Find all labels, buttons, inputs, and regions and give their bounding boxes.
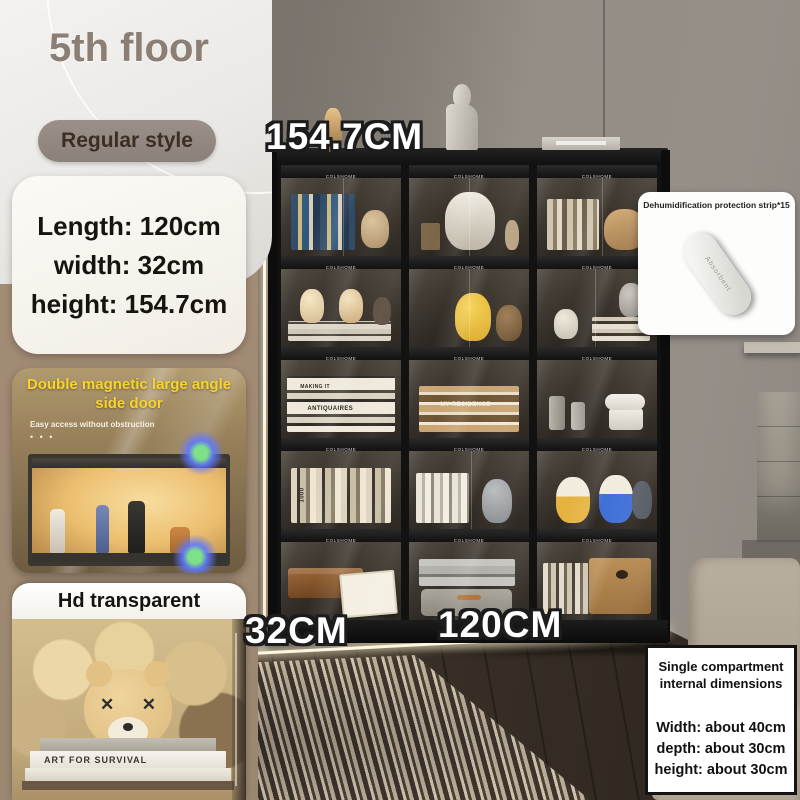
internal-dimensions-title-line2: internal dimensions [648, 675, 794, 692]
internal-dimensions-title-line1: Single compartment [648, 658, 794, 675]
stacked-books [419, 386, 520, 432]
brand-label: COLSHOME [326, 356, 357, 361]
internal-depth-spec: depth: about 30cm [648, 739, 794, 760]
cat-figurine [300, 289, 324, 323]
cabinet-cell: COLSHOME [405, 438, 533, 529]
shelf-brand-bar: COLSHOME [281, 347, 401, 360]
brand-label: COLSHOME [582, 447, 613, 452]
shelf-brand-bar: COLSHOME [281, 256, 401, 269]
shelf-brand-bar: COLSHOME [409, 165, 529, 178]
magnetic-spark-effect [178, 430, 224, 476]
depth-dimension-label: 32CM [245, 610, 348, 652]
cabinet-cell: COLSHOME [277, 529, 405, 620]
cabinet-cell: COLSHOME [277, 165, 405, 256]
dehumidifier-strip-photo: Absorbent [645, 218, 788, 328]
floor-title: 5th floor [0, 26, 258, 71]
cell-contents [537, 451, 657, 529]
cell-contents [409, 178, 529, 256]
feature-card-dots: • • • [30, 432, 54, 442]
cabinet-cell: COLSHOME MAKING IT ANTIQUAIRES [277, 347, 405, 438]
white-books [416, 473, 469, 523]
shelf-brand-bar: COLSHOME [537, 438, 657, 451]
wooden-crate [589, 558, 651, 614]
shelf-brand-bar: COLSHOME [281, 438, 401, 451]
brand-label: COLSHOME [582, 174, 613, 179]
blue-helmet-figure [599, 475, 633, 523]
certificate-frame [339, 570, 398, 618]
cell-contents [537, 360, 657, 438]
style-badge-label: Regular style [61, 129, 193, 153]
pikachu-plush [455, 293, 491, 341]
brand-label: COLSHOME [454, 174, 485, 179]
brand-label: COLSHOME [582, 265, 613, 270]
height-dimension-label: 154.7CM [266, 116, 423, 158]
cell-contents [409, 269, 529, 347]
hd-card-title: Hd transparent [58, 590, 200, 613]
height-spec: height: 154.7cm [31, 289, 228, 320]
gray-box-stack [419, 559, 515, 586]
cell-contents: MY RESIDENCE [409, 360, 529, 438]
book-stack: ART FOR SURVIVAL [22, 738, 234, 790]
cat-figurine [339, 289, 363, 323]
sideboard [757, 392, 800, 542]
length-spec: Length: 120cm [37, 211, 221, 242]
shelf-brand-bar: COLSHOME [537, 347, 657, 360]
bear-photo: ✕ ✕ ART FOR SURVIVAL [12, 619, 246, 800]
book-spine-plain [40, 738, 216, 751]
shelf-brand-bar: COLSHOME [281, 529, 401, 542]
brand-label: COLSHOME [454, 447, 485, 452]
cell-contents [409, 451, 529, 529]
cabinet-cell: COLSHOME [533, 438, 661, 529]
book-title: 1000 [300, 487, 306, 502]
brand-label: COLSHOME [326, 265, 357, 270]
brand-label: COLSHOME [582, 356, 613, 361]
background-figure [632, 481, 652, 519]
cabinet-cell: COLSHOME [277, 256, 405, 347]
product-infographic: COLSHOME COLSHOME COLSHOME [0, 0, 800, 800]
book-stack-base [288, 321, 391, 341]
cabinet-cell: COLSHOME MY RESIDENCE [405, 347, 533, 438]
brand-label: COLSHOME [326, 447, 357, 452]
cabinet-cell: COLSHOME 1000 [277, 438, 405, 529]
brand-label: COLSHOME [326, 538, 357, 543]
cell-contents [281, 542, 401, 620]
dark-figurine [373, 297, 391, 325]
book-spines [547, 199, 600, 250]
brand-label: COLSHOME [326, 174, 357, 179]
canister [549, 396, 565, 430]
shelf-brand-bar: COLSHOME [537, 165, 657, 178]
internal-width-spec: Width: about 40cm [648, 718, 794, 739]
brand-label: COLSHOME [454, 265, 485, 270]
kaws-bear-head: ✕ ✕ [84, 669, 172, 749]
book-title: ANTIQUAIRES [307, 406, 353, 412]
internal-dimensions-card: Single compartment internal dimensions W… [645, 645, 797, 795]
bear-ear [144, 661, 170, 687]
cabinet-cell: COLSHOME [533, 347, 661, 438]
bear-nose [123, 723, 133, 731]
small-figure [505, 220, 519, 250]
book-spine-title: ART FOR SURVIVAL [30, 755, 147, 765]
width-dimension-label: 120CM [438, 604, 562, 646]
cell-contents [281, 178, 401, 256]
dehumidifier-card-title-row: Dehumidification protection strip*15 [638, 192, 795, 218]
bear-x-eye: ✕ [142, 695, 156, 715]
style-badge: Regular style [38, 120, 216, 162]
hd-card-header: Hd transparent [12, 583, 246, 619]
book-spine-plain [25, 768, 231, 781]
magnetic-door-feature-card: Double magnetic large angle side door Ea… [12, 368, 246, 573]
kaws-gray-figure [482, 479, 512, 523]
stacked-books-on-top [542, 137, 620, 150]
shelf-brand-bar: COLSHOME [409, 347, 529, 360]
cabinet-cell: COLSHOME [405, 165, 533, 256]
hd-transparent-card: Hd transparent ✕ ✕ ART FOR SURVIVAL [12, 583, 246, 800]
small-decor [421, 223, 440, 250]
white-vase [554, 309, 578, 339]
width-spec: width: 32cm [54, 250, 204, 281]
dimensions-card: Length: 120cm width: 32cm height: 154.7c… [12, 176, 246, 354]
shelf-edge [22, 781, 234, 790]
suitcase-handle [457, 595, 481, 600]
book-title: MAKING IT [300, 384, 330, 390]
dehumidifier-card: Dehumidification protection strip*15 Abs… [638, 192, 795, 335]
shelf-brand-bar: COLSHOME [409, 529, 529, 542]
figure-white-dress [50, 509, 65, 553]
shelf-brand-bar: COLSHOME [409, 256, 529, 269]
feature-card-subtitle: Easy access without obstruction [30, 420, 154, 429]
brand-label: COLSHOME [582, 538, 613, 543]
figure-black [128, 501, 145, 553]
dehumidifier-card-title: Dehumidification protection strip*15 [643, 200, 789, 210]
plaster-bust-statue [446, 84, 478, 150]
figure-blue [96, 505, 109, 553]
book-title: MY RESIDENCE [440, 402, 490, 408]
brand-label: COLSHOME [116, 467, 143, 472]
shelf-brand-bar: COLSHOME [537, 529, 657, 542]
white-sculpture [445, 192, 495, 250]
book-spine-titled: ART FOR SURVIVAL [30, 751, 226, 768]
magnetic-spark-effect [172, 534, 218, 573]
internal-height-spec: height: about 30cm [648, 760, 794, 781]
feature-card-title: Double magnetic large angle side door [22, 375, 236, 413]
cell-contents: MAKING IT ANTIQUAIRES [281, 360, 401, 438]
book-spines [291, 194, 356, 250]
cabinet-compartment-grid: COLSHOME COLSHOME COLSHOME [277, 165, 661, 620]
bust-chest [446, 104, 478, 150]
cell-contents [281, 269, 401, 347]
dehumidifier-strip: Absorbent [676, 226, 758, 322]
shelf-brand-bar: COLSHOME [281, 165, 401, 178]
shelf-brand-bar: COLSHOME [409, 438, 529, 451]
book-spines [291, 468, 392, 523]
cat-sculpture [361, 210, 389, 248]
canister [571, 402, 585, 430]
info-sidebar: 5th floor Regular style Length: 120cm wi… [0, 0, 258, 800]
dehumidifier-strip-label: Absorbent [702, 255, 731, 293]
cabinet-cell: COLSHOME [405, 256, 533, 347]
bear-ear [86, 661, 112, 687]
brand-label: COLSHOME [454, 356, 485, 361]
brand-label: COLSHOME [454, 538, 485, 543]
leaning-books [416, 286, 452, 341]
bear-x-eye: ✕ [100, 695, 114, 715]
glass-door-edge [232, 619, 246, 800]
yellow-helmet-figure [556, 477, 590, 523]
wall-shelf [744, 342, 800, 353]
stand-mixer-base [609, 408, 643, 430]
stand-mixer-head [605, 394, 645, 410]
brown-plush [496, 305, 522, 341]
cell-contents: 1000 [281, 451, 401, 529]
internal-dimensions-specs: Width: about 40cm depth: about 30cm heig… [648, 718, 794, 781]
